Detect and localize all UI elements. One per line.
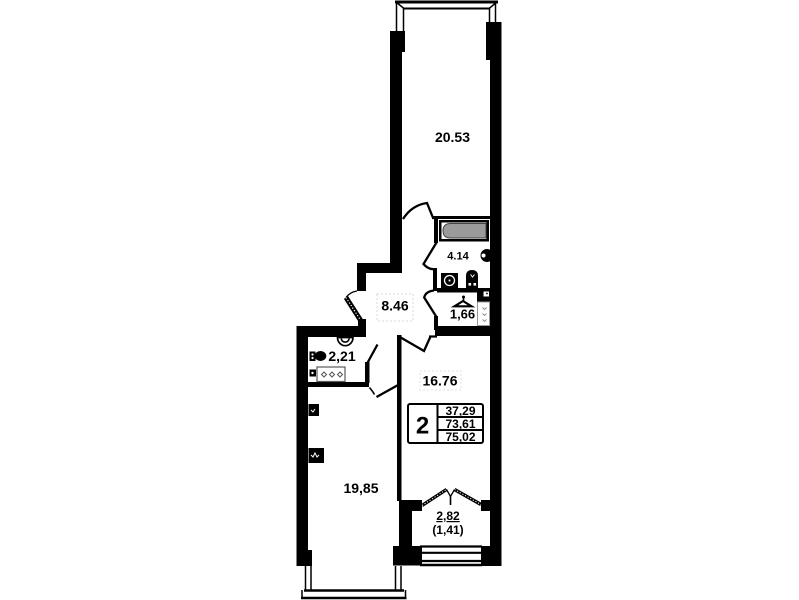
svg-text:(1,41): (1,41): [432, 523, 463, 537]
svg-text:4.14: 4.14: [447, 251, 469, 263]
svg-text:2: 2: [416, 413, 429, 440]
svg-text:37,29: 37,29: [445, 404, 475, 418]
svg-text:1,66: 1,66: [450, 307, 475, 322]
svg-text:2,82: 2,82: [436, 509, 460, 523]
svg-text:73,61: 73,61: [445, 417, 475, 431]
svg-text:20.53: 20.53: [435, 129, 470, 145]
svg-text:8.46: 8.46: [381, 298, 408, 314]
svg-text:2,21: 2,21: [328, 348, 355, 364]
svg-text:16.76: 16.76: [422, 373, 457, 389]
svg-text:19,85: 19,85: [343, 480, 378, 496]
svg-text:75,02: 75,02: [445, 430, 475, 444]
